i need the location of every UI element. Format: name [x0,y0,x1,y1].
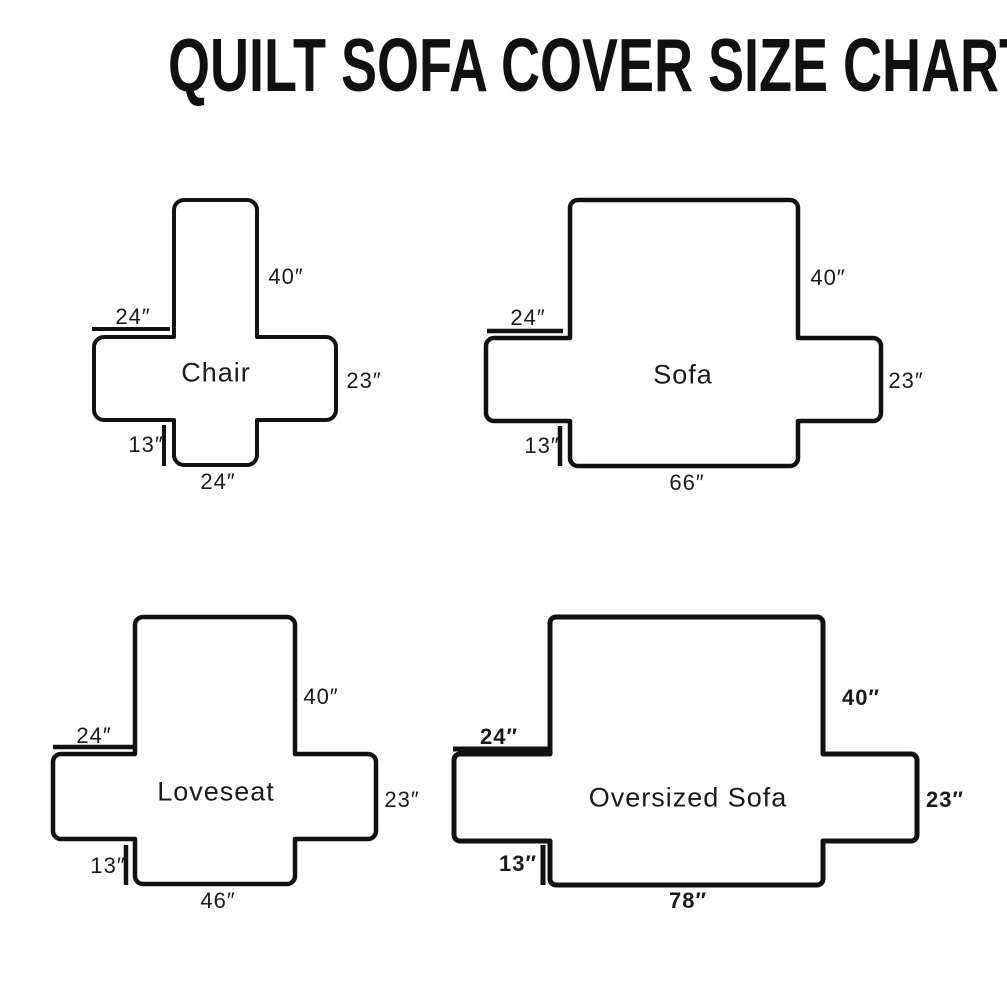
oversized-sofa-shape [0,0,1007,1000]
oversized-sofa-skirt-height-label: 13″ [499,851,537,877]
oversized-sofa-arm-top-width-label: 24″ [480,724,518,750]
oversized-sofa-name-label: Oversized Sofa [589,783,788,814]
oversized-sofa-base-width-label: 78″ [669,888,707,914]
oversized-sofa-back-height-label: 40″ [842,685,880,711]
oversized-sofa-arm-side-height-label: 23″ [926,787,964,813]
size-chart: QUILT SOFA COVER SIZE CHART 40″ 24″ Chai… [0,0,1007,1000]
oversized-sofa-diagram: 40″ 24″ Oversized Sofa 23″ 13″ 78″ [0,0,1007,1000]
